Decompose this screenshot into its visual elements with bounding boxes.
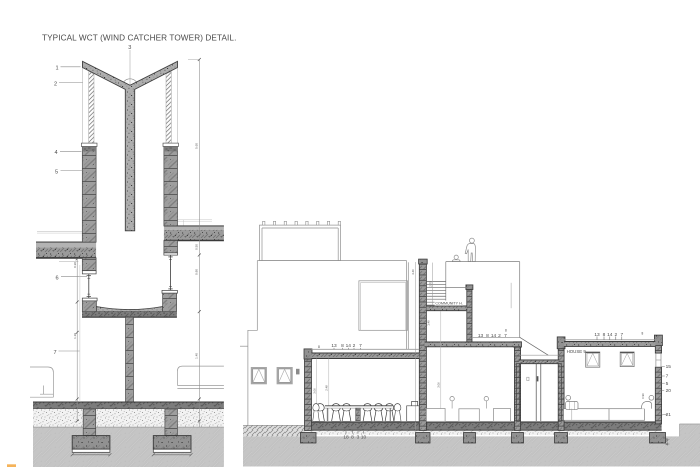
svg-text:2: 2 bbox=[54, 81, 57, 87]
svg-text:0.50: 0.50 bbox=[195, 244, 199, 250]
svg-text:8: 8 bbox=[486, 333, 489, 339]
svg-text:4: 4 bbox=[55, 150, 58, 156]
svg-text:1.40: 1.40 bbox=[195, 353, 199, 359]
svg-text:18: 18 bbox=[343, 434, 349, 440]
svg-text:1.40: 1.40 bbox=[427, 320, 431, 326]
svg-text:2.48: 2.48 bbox=[325, 385, 329, 391]
svg-text:5: 5 bbox=[55, 169, 58, 175]
svg-text:21: 21 bbox=[666, 412, 672, 418]
svg-text:5.60: 5.60 bbox=[195, 143, 199, 149]
svg-text:0.30: 0.30 bbox=[73, 262, 77, 268]
svg-text:10: 10 bbox=[361, 434, 367, 440]
svg-text:3.06: 3.06 bbox=[437, 382, 441, 388]
svg-text:3: 3 bbox=[128, 45, 131, 51]
svg-text:2: 2 bbox=[498, 333, 501, 339]
svg-text:1: 1 bbox=[56, 65, 59, 71]
svg-text:1.10: 1.10 bbox=[73, 333, 77, 339]
svg-text:15: 15 bbox=[666, 364, 672, 370]
svg-text:TYPICAL WCT (WIND CATCHER TOWE: TYPICAL WCT (WIND CATCHER TOWER) DETAIL. bbox=[42, 33, 236, 42]
svg-text:3.06: 3.06 bbox=[312, 388, 316, 394]
svg-text:8: 8 bbox=[318, 345, 320, 349]
svg-text:3: 3 bbox=[357, 434, 360, 440]
svg-text:8: 8 bbox=[505, 329, 507, 333]
svg-text:4: 4 bbox=[666, 442, 669, 448]
svg-text:0.90: 0.90 bbox=[195, 269, 199, 275]
svg-text:5: 5 bbox=[666, 381, 669, 387]
svg-text:7: 7 bbox=[504, 333, 507, 339]
svg-text:4.40: 4.40 bbox=[411, 269, 415, 275]
svg-text:7: 7 bbox=[54, 350, 57, 356]
svg-text:HOUSE 9: HOUSE 9 bbox=[567, 349, 587, 354]
svg-text:14: 14 bbox=[491, 333, 497, 339]
svg-text:COMMUNITY H.: COMMUNITY H. bbox=[435, 302, 462, 306]
svg-text:13: 13 bbox=[478, 333, 484, 339]
svg-text:2.75: 2.75 bbox=[428, 281, 432, 287]
svg-text:8: 8 bbox=[351, 434, 354, 440]
svg-text:6: 6 bbox=[56, 276, 59, 282]
svg-text:7: 7 bbox=[666, 374, 669, 380]
svg-text:20: 20 bbox=[666, 388, 672, 394]
svg-text:0.90: 0.90 bbox=[641, 393, 645, 399]
svg-text:8: 8 bbox=[642, 332, 644, 336]
